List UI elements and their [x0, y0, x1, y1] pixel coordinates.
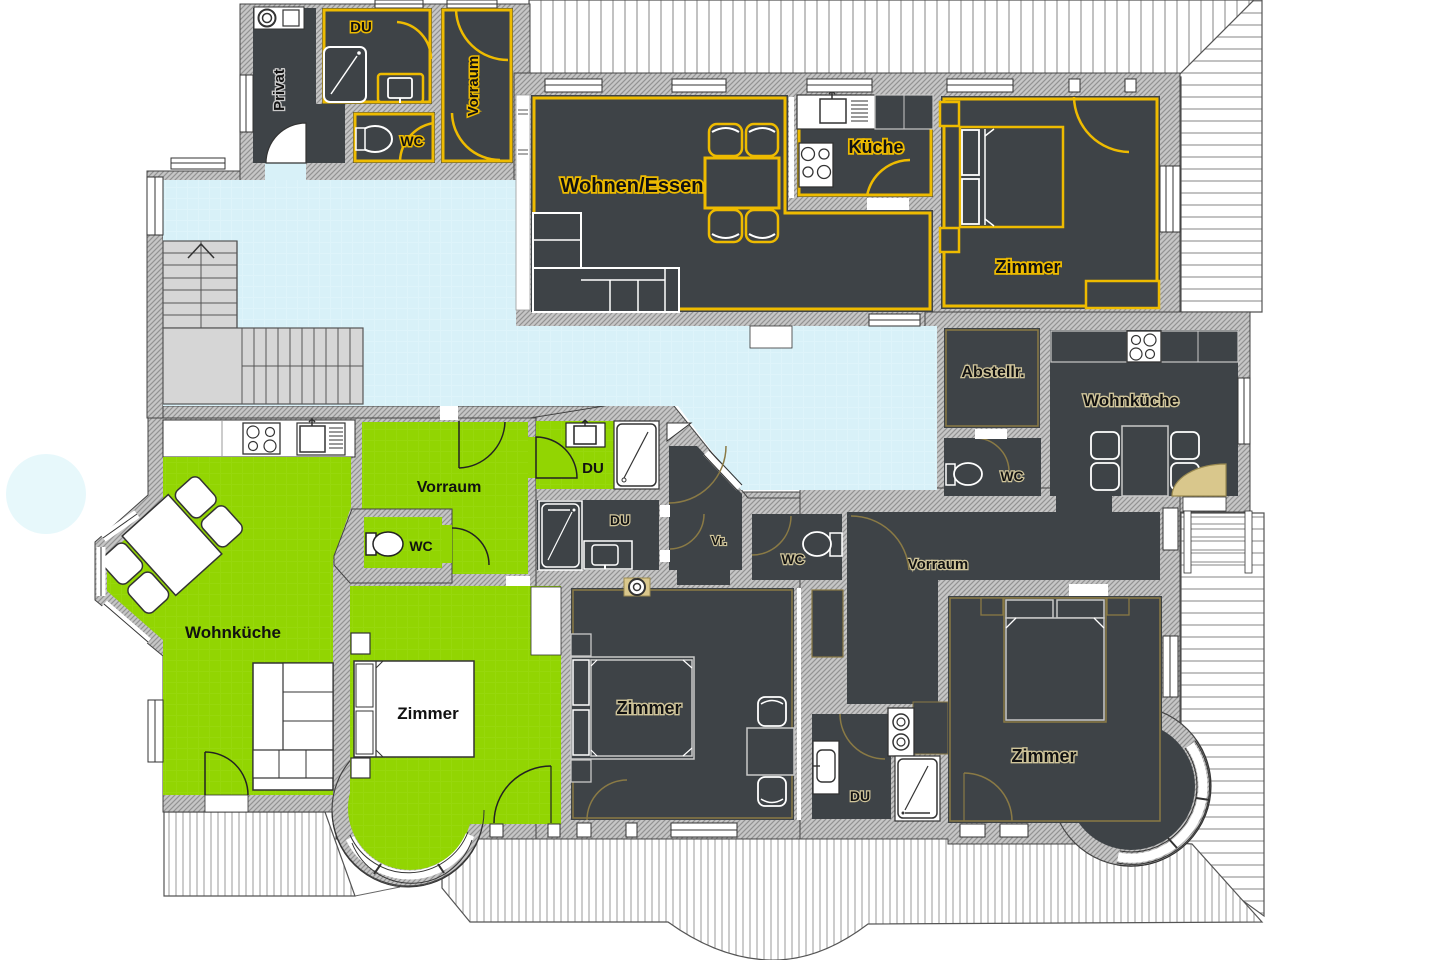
svg-text:DU: DU: [850, 788, 870, 804]
svg-text:WC: WC: [1000, 468, 1023, 484]
svg-text:Wohnküche: Wohnküche: [1083, 391, 1179, 410]
svg-text:WC: WC: [400, 133, 423, 149]
svg-text:Vorraum: Vorraum: [908, 556, 969, 573]
svg-text:Wohnküche: Wohnküche: [185, 623, 281, 642]
svg-text:WC: WC: [781, 551, 804, 567]
svg-text:Zimmer: Zimmer: [616, 698, 681, 718]
svg-text:WC: WC: [409, 538, 432, 554]
svg-text:Vr.: Vr.: [711, 533, 727, 548]
svg-text:DU: DU: [582, 460, 604, 477]
svg-text:Wohnen/Essen: Wohnen/Essen: [561, 175, 704, 197]
svg-text:Vorraum: Vorraum: [417, 479, 482, 496]
svg-text:DU: DU: [350, 19, 372, 36]
svg-text:Vorraum: Vorraum: [465, 56, 482, 117]
svg-text:Zimmer: Zimmer: [397, 704, 459, 723]
svg-text:DU: DU: [610, 512, 630, 528]
svg-text:Abstellr.: Abstellr.: [961, 364, 1024, 381]
svg-text:Zimmer: Zimmer: [995, 257, 1060, 277]
svg-text:Küche: Küche: [848, 137, 903, 157]
svg-text:Privat: Privat: [271, 69, 288, 111]
svg-text:Zimmer: Zimmer: [1011, 746, 1076, 766]
